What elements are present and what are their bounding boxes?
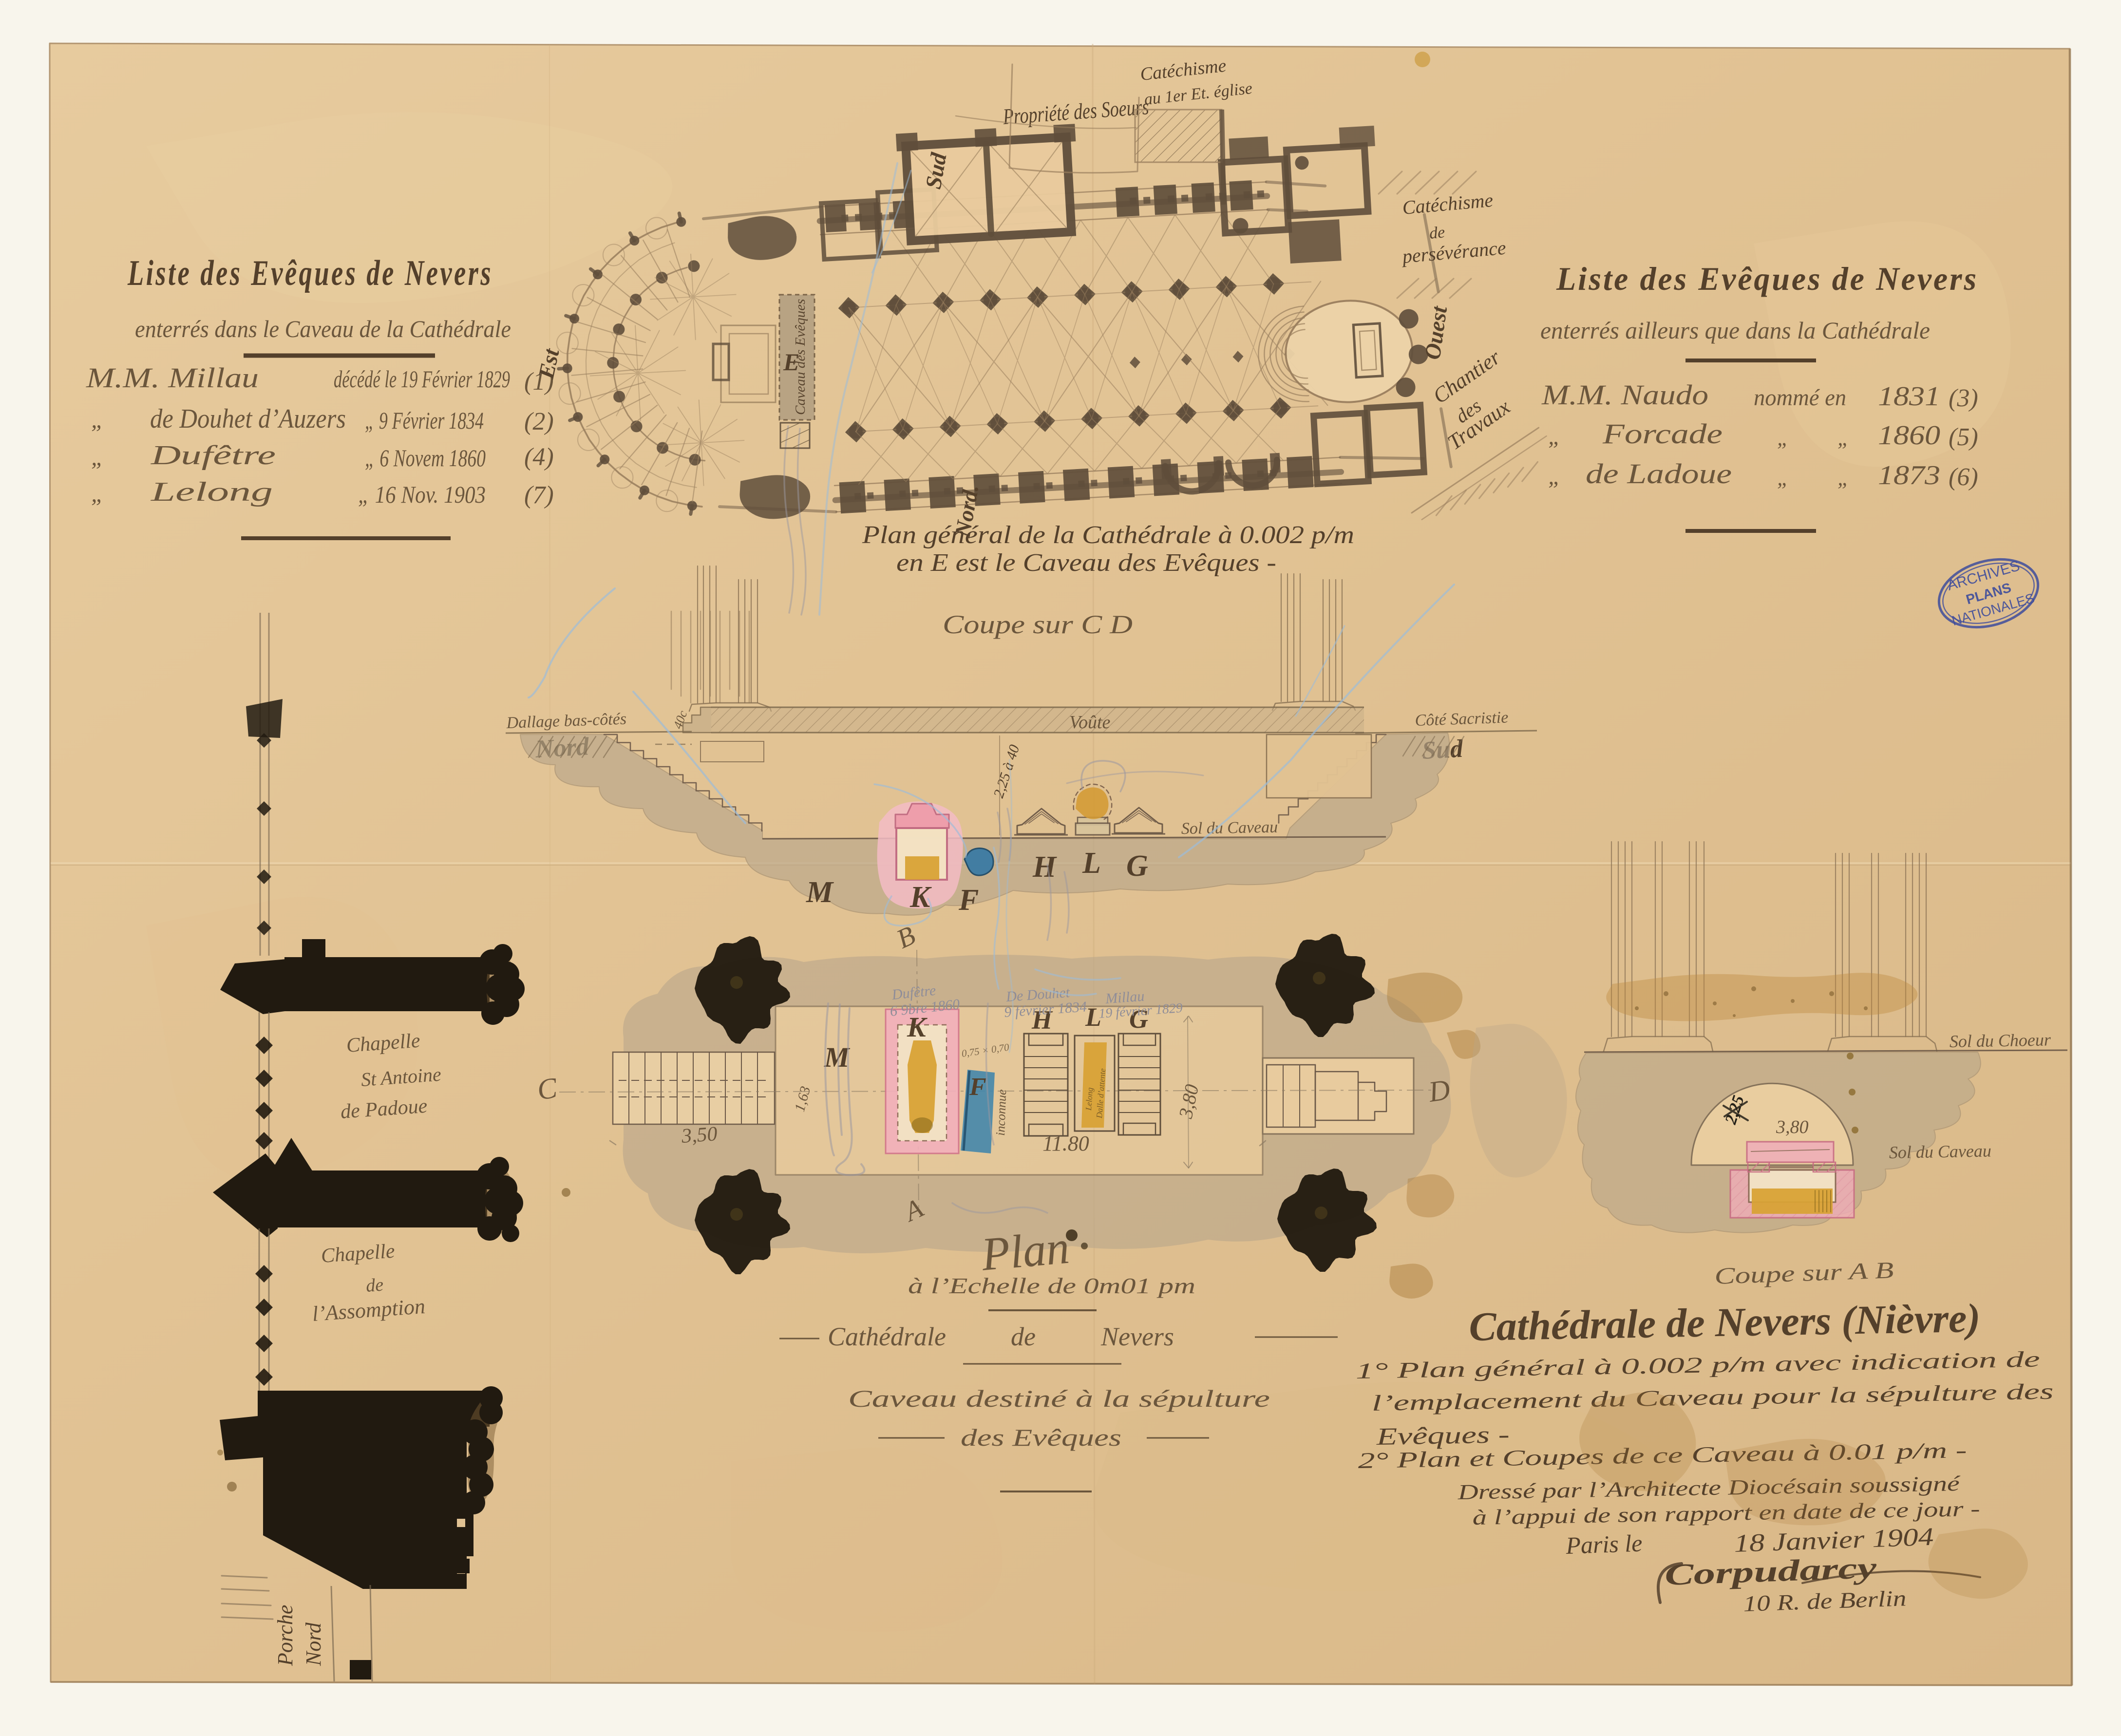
svg-text:(5): (5) (1949, 423, 1978, 451)
svg-text:Paris le: Paris le (1565, 1529, 1643, 1559)
svg-text:Sol du Caveau: Sol du Caveau (1181, 818, 1278, 838)
svg-text:Sol du Choeur: Sol du Choeur (1949, 1030, 2051, 1051)
svg-text:de: de (1011, 1322, 1036, 1351)
svg-text:1873: 1873 (1878, 460, 1940, 491)
svg-text:(4): (4) (524, 443, 554, 471)
svg-text:K: K (909, 881, 932, 914)
svg-text:M: M (806, 876, 834, 909)
svg-text:„: „ (91, 481, 104, 507)
svg-text:Liste des Evêques de Nevers: Liste des Evêques de Nevers (127, 253, 493, 293)
svg-text:Coupe sur C D: Coupe sur C D (943, 610, 1133, 639)
svg-text:de: de (365, 1275, 384, 1296)
svg-text:1860: 1860 (1878, 420, 1940, 451)
svg-text:M.M. Millau: M.M. Millau (86, 362, 259, 394)
svg-text:„ 9 Février 1834: „ 9 Février 1834 (365, 407, 484, 434)
svg-text:„ 6 Novem 1860: „ 6 Novem 1860 (365, 444, 486, 472)
svg-text:en E est le Caveau des Evêques: en E est le Caveau des Evêques - (896, 549, 1276, 577)
svg-text:de: de (1428, 223, 1445, 243)
svg-text:„: „ (91, 445, 104, 471)
svg-text:„ 16 Nov. 1903: „ 16 Nov. 1903 (358, 481, 486, 508)
svg-text:Voûte: Voûte (1069, 712, 1111, 733)
svg-text:à l’Echelle de 0m01 pm: à l’Echelle de 0m01 pm (908, 1273, 1195, 1298)
svg-text:„: „ (1548, 424, 1561, 450)
svg-text:Côté Sacristie: Côté Sacristie (1415, 708, 1509, 730)
svg-text:de Douhet d’Auzers: de Douhet d’Auzers (150, 404, 346, 434)
svg-text:3,50: 3,50 (680, 1123, 718, 1148)
svg-text:Caveau destiné à la sépulture: Caveau destiné à la sépulture (848, 1385, 1270, 1412)
svg-text:E: E (783, 348, 799, 376)
svg-text:M.M. Naudo: M.M. Naudo (1541, 379, 1708, 411)
svg-text:décédé le 19 Février 1829: décédé le 19 Février 1829 (334, 365, 510, 393)
svg-text:F: F (958, 884, 979, 917)
svg-text:1831: 1831 (1878, 381, 1940, 412)
svg-text:Cathédrale: Cathédrale (828, 1322, 946, 1351)
svg-text:„: „ (1837, 466, 1849, 490)
svg-text:Sol du Caveau: Sol du Caveau (1889, 1141, 1991, 1162)
svg-text:„: „ (1548, 464, 1561, 490)
svg-text:Dufêtre: Dufêtre (150, 440, 276, 471)
svg-text:Porche: Porche (273, 1605, 297, 1666)
svg-text:Liste des Evêques de Nevers: Liste des Evêques de Nevers (1556, 260, 1978, 297)
svg-text:de Ladoue: de Ladoue (1586, 458, 1732, 490)
svg-text:„: „ (91, 407, 104, 433)
svg-text:F: F (969, 1073, 986, 1101)
svg-text:„: „ (1777, 466, 1789, 490)
svg-text:D: D (1426, 1073, 1452, 1108)
svg-text:enterrés ailleurs que dans la: enterrés ailleurs que dans la Cathédrale (1540, 317, 1930, 344)
svg-text:(3): (3) (1949, 384, 1978, 412)
svg-text:Plan: Plan (979, 1221, 1072, 1281)
svg-text:Forcade: Forcade (1602, 418, 1723, 450)
svg-text:Lelong: Lelong (1084, 1087, 1095, 1111)
svg-text:L: L (1082, 847, 1101, 880)
svg-text:Cathédrale de Nevers (Nièvre): Cathédrale de Nevers (Nièvre) (1469, 1296, 1981, 1350)
svg-text:(7): (7) (524, 481, 554, 509)
svg-text:11.80: 11.80 (1042, 1132, 1089, 1155)
svg-text:enterrés dans le Caveau de la: enterrés dans le Caveau de la Cathédrale (135, 315, 511, 342)
svg-text:(2): (2) (524, 408, 554, 435)
svg-text:inconnue: inconnue (993, 1089, 1009, 1136)
svg-text:des Evêques: des Evêques (961, 1424, 1121, 1451)
svg-text:Plan général de la Cathédrale: Plan général de la Cathédrale à 0.002 p/… (862, 521, 1354, 549)
svg-text:Lelong: Lelong (150, 477, 273, 507)
svg-text:„: „ (1837, 426, 1849, 450)
svg-text:M: M (824, 1041, 851, 1073)
svg-text:G: G (1126, 849, 1148, 883)
svg-text:(6): (6) (1949, 463, 1978, 491)
svg-text:H: H (1032, 850, 1057, 884)
svg-text:Nevers: Nevers (1100, 1322, 1174, 1351)
svg-text:nommé en: nommé en (1754, 385, 1846, 411)
svg-text:3,80: 3,80 (1776, 1117, 1809, 1137)
svg-text:„: „ (1777, 426, 1789, 450)
svg-text:Nord: Nord (302, 1622, 325, 1666)
